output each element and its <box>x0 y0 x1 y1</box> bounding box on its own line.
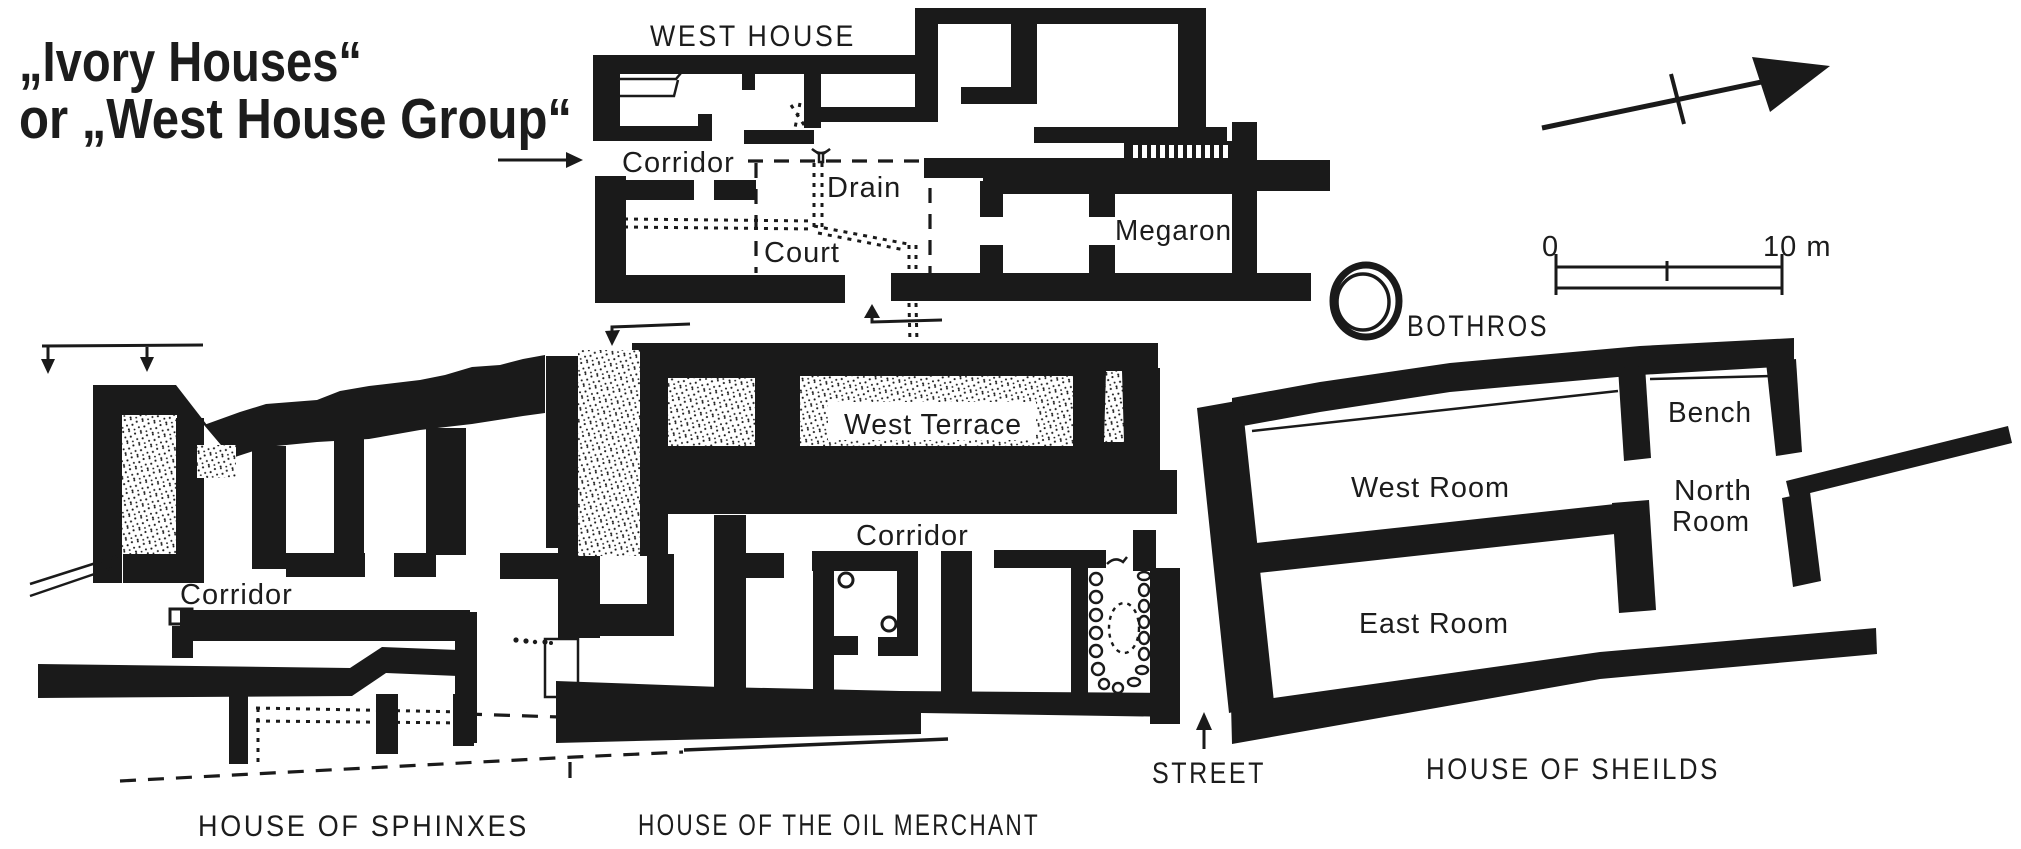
svg-text:Room: Room <box>1672 506 1750 538</box>
svg-text:West Terrace: West Terrace <box>844 409 1022 441</box>
svg-text:10 m: 10 m <box>1763 231 1831 263</box>
svg-text:Corridor: Corridor <box>856 520 969 552</box>
svg-text:Drain: Drain <box>827 172 901 204</box>
svg-text:BOTHROS: BOTHROS <box>1407 310 1549 343</box>
svg-text:East Room: East Room <box>1359 608 1509 640</box>
svg-text:Bench: Bench <box>1668 397 1752 429</box>
svg-text:Corridor: Corridor <box>180 579 293 611</box>
svg-text:HOUSE OF SPHINXES: HOUSE OF SPHINXES <box>198 810 529 843</box>
svg-text:WEST HOUSE: WEST HOUSE <box>650 20 856 53</box>
svg-text:Corridor: Corridor <box>622 147 735 179</box>
svg-text:West Room: West Room <box>1351 472 1510 504</box>
svg-text:HOUSE OF THE OIL MERCHANT: HOUSE OF THE OIL MERCHANT <box>638 809 1040 842</box>
svg-text:HOUSE OF SHEILDS: HOUSE OF SHEILDS <box>1426 753 1720 786</box>
svg-text:Court: Court <box>764 237 840 269</box>
svg-text:„Ivory Houses“: „Ivory Houses“ <box>19 30 362 94</box>
svg-text:STREET: STREET <box>1152 757 1266 790</box>
svg-text:North: North <box>1674 475 1752 507</box>
svg-text:or „West House Group“: or „West House Group“ <box>19 87 572 151</box>
svg-text:Megaron: Megaron <box>1115 215 1232 247</box>
